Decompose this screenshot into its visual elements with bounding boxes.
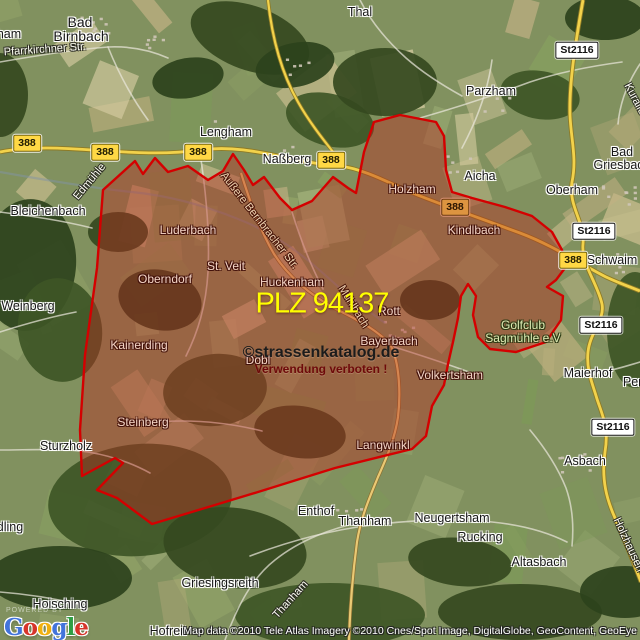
street-label: Thanham — [271, 579, 310, 621]
place-label: Maierhof — [564, 367, 613, 380]
place-label: Altasbach — [512, 556, 567, 569]
google-logo-letter: o — [37, 614, 51, 640]
place-label: Volkertsham — [417, 369, 483, 381]
place-label: Oberndorf — [138, 273, 192, 285]
place-label: Kainerding — [110, 339, 167, 351]
place-label: Naßberg — [263, 153, 312, 166]
road-badge-st2116: St2116 — [572, 223, 615, 240]
google-logo[interactable]: Google — [4, 616, 88, 639]
google-logo-letter: o — [23, 614, 37, 640]
google-logo-letter: G — [4, 614, 23, 640]
place-label: Golfclub — [501, 319, 545, 331]
powered-by-text: POWERED BY — [6, 607, 63, 614]
place-label: Thanham — [339, 515, 392, 528]
place-label: Hofreit — [150, 625, 187, 638]
street-label: Außere Bernbracher Str. — [218, 171, 300, 272]
watermark: ©strassenkatalog.de Verwendung verboten … — [243, 344, 400, 376]
place-label: Enthof — [298, 505, 334, 518]
street-label: Pfarrkirchner Str. — [3, 42, 86, 59]
road-badge-388: 388 — [317, 152, 345, 169]
place-label: Weinberg — [1, 300, 54, 313]
watermark-warning: Verwendung verboten ! — [243, 362, 400, 376]
place-label: dling — [0, 521, 23, 534]
place-label: Kindlbach — [448, 224, 501, 236]
place-label: St. Veit — [207, 260, 245, 272]
place-label: Pen — [623, 376, 640, 389]
place-label: Langwinkl — [356, 439, 409, 451]
place-label: Bleichenbach — [10, 205, 85, 218]
place-label: Oberham — [546, 184, 598, 197]
road-badge-st2116: St2116 — [555, 42, 598, 59]
street-label: Kurallee — [622, 82, 640, 123]
map-attribution: Map data ©2010 Tele Atlas Imagery ©2010 … — [183, 625, 637, 637]
google-logo-letter: g — [51, 614, 66, 640]
place-label: Huckenham — [260, 276, 324, 288]
place-label: Bad — [68, 15, 93, 29]
plz-code-label: PLZ 94137 — [256, 288, 389, 321]
place-label: Luderbach — [160, 224, 217, 236]
street-label: Edmühle — [72, 162, 108, 202]
place-label: Lengham — [200, 126, 252, 139]
place-label: Sturzholz — [40, 440, 92, 453]
place-label: Rucking — [457, 531, 502, 544]
place-label: Steinberg — [117, 416, 168, 428]
watermark-site: ©strassenkatalog.de — [243, 344, 400, 362]
place-label: ham — [0, 28, 21, 41]
place-label: Schwaim — [587, 254, 638, 267]
road-badge-388: 388 — [559, 252, 587, 269]
place-label: Holzham — [388, 183, 435, 195]
place-label: Neugertsham — [414, 512, 489, 525]
place-label: Griesbach — [594, 159, 640, 172]
map-canvas[interactable]: hamBadBirnbachPfarrkirchner Str.ThalParz… — [0, 0, 640, 640]
road-badge-st2116: St2116 — [591, 419, 634, 436]
road-badge-388: 388 — [184, 144, 212, 161]
google-logo-letter: e — [74, 614, 88, 640]
road-badge-388: 388 — [91, 144, 119, 161]
road-badge-st2116: St2116 — [579, 317, 622, 334]
place-label: Griesingsreith — [181, 577, 258, 590]
place-label: Asbach — [564, 455, 606, 468]
place-label: Sagmühle e.V — [485, 332, 560, 344]
place-label: Bad — [611, 146, 633, 159]
road-badge-388: 388 — [441, 199, 469, 216]
place-label: Parzham — [466, 85, 516, 98]
road-badge-388: 388 — [13, 135, 41, 152]
place-label: Thal — [348, 6, 372, 19]
place-label: Aicha — [464, 170, 495, 183]
street-label: Holzhausen — [611, 516, 640, 573]
